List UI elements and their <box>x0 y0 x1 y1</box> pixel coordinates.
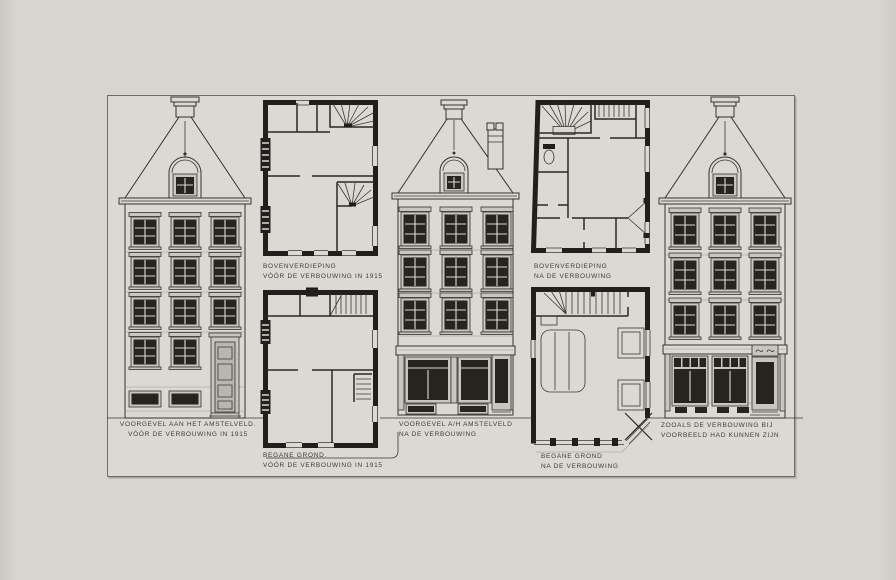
entrance-door <box>209 333 241 418</box>
figure-caption: BEGANE GROND NA DE VERBOUWING <box>541 452 619 471</box>
caption-line: VÓÓR DE VERBOUWING IN 1915 <box>112 430 264 440</box>
figure-caption: BEGANE GROND. VÓÓR DE VERBOUWING IN 1915 <box>263 451 383 470</box>
long-stair <box>533 290 631 317</box>
caption-line: VOORGEVEL AAN HET AMSTELVELD. <box>112 420 264 430</box>
winder-stair <box>330 103 375 128</box>
plan-ground-after <box>530 290 654 453</box>
small-stair <box>354 374 372 402</box>
chimney <box>441 100 467 119</box>
caption-line: NA DE VERBOUWING <box>399 430 513 440</box>
side-chimney <box>487 123 503 169</box>
drawing-sheet: VOORGEVEL AAN HET AMSTELVELD. VÓÓR DE VE… <box>0 0 896 580</box>
straight-stair <box>330 293 373 316</box>
display-window-box <box>618 328 644 410</box>
figure-caption: BOVENVERDIEPING NA DE VERBOUWING <box>534 262 612 281</box>
plan-upper-after <box>533 103 652 255</box>
caption-line: VÓÓR DE VERBOUWING IN 1915 <box>263 272 383 282</box>
facade-before-elevation <box>107 97 263 418</box>
corner-entrance-x <box>625 413 652 440</box>
caption-line: BOVENVERDIEPING <box>534 262 612 272</box>
caption-line: BOVENVERDIEPING <box>263 262 383 272</box>
architectural-drawing <box>0 0 896 580</box>
figure-caption: VOORGEVEL AAN HET AMSTELVELD. VÓÓR DE VE… <box>112 420 264 439</box>
caption-line: VOORBEELD HAD KUNNEN ZIJN <box>661 431 779 441</box>
figure-caption: VOORGEVEL A/H AMSTELVELD NA DE VERBOUWIN… <box>399 420 513 439</box>
shop-counter <box>541 316 585 392</box>
caption-line: BEGANE GROND <box>541 452 619 462</box>
winder-stair <box>538 103 591 135</box>
caption-line: VÓÓR DE VERBOUWING IN 1915 <box>263 461 383 471</box>
figure-caption: ZOOALS DE VERBOUWING BIJ VOORBEELD HAD K… <box>661 421 779 440</box>
caption-line: NA DE VERBOUWING <box>541 462 619 472</box>
toilet-symbol <box>543 144 555 164</box>
facade-proposed-elevation <box>647 97 803 418</box>
caption-line: VOORGEVEL A/H AMSTELVELD <box>399 420 513 430</box>
plan-ground-before <box>261 288 399 459</box>
figure-caption: BOVENVERDIEPING VÓÓR DE VERBOUWING IN 19… <box>263 262 383 281</box>
chimney <box>171 97 199 117</box>
plan-upper-before <box>261 99 380 257</box>
winder-stair <box>337 182 375 207</box>
straight-stair <box>595 103 636 138</box>
caption-line: BEGANE GROND. <box>263 451 383 461</box>
chimney <box>711 97 739 117</box>
caption-line: ZOOALS DE VERBOUWING BIJ <box>661 421 779 431</box>
caption-line: NA DE VERBOUWING <box>534 272 612 282</box>
facade-after-elevation <box>380 100 531 418</box>
